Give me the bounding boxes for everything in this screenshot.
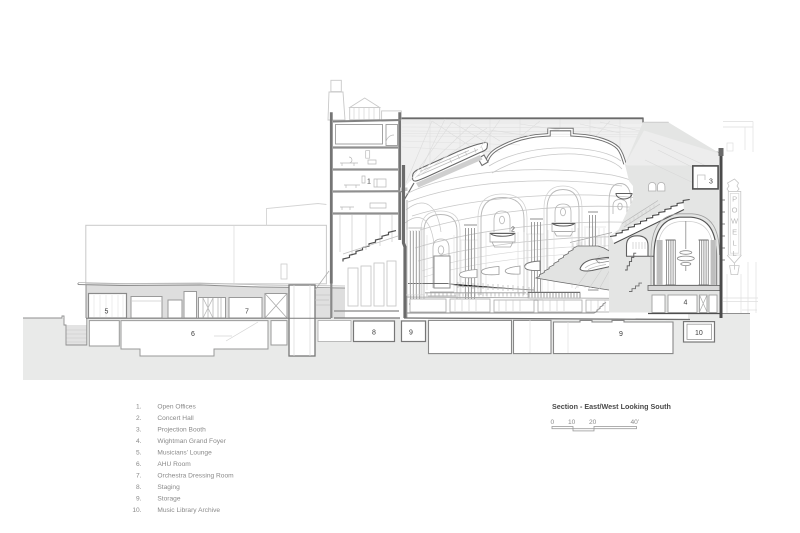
svg-text:E: E <box>732 228 737 237</box>
svg-text:Staging: Staging <box>157 484 180 491</box>
svg-text:10: 10 <box>695 330 703 337</box>
svg-text:P: P <box>732 195 737 204</box>
svg-text:3.: 3. <box>136 426 142 433</box>
svg-text:Projection Booth: Projection Booth <box>157 426 206 433</box>
svg-text:9.: 9. <box>136 495 142 502</box>
svg-text:5.: 5. <box>136 449 142 456</box>
svg-text:Music Library Archive: Music Library Archive <box>157 507 220 514</box>
svg-text:20: 20 <box>589 419 597 426</box>
svg-text:9: 9 <box>409 330 413 337</box>
svg-text:10: 10 <box>568 419 576 426</box>
svg-text:AHU Room: AHU Room <box>157 461 191 468</box>
svg-text:Concert Hall: Concert Hall <box>157 415 194 422</box>
svg-text:W: W <box>731 217 739 226</box>
svg-text:1.: 1. <box>136 403 142 410</box>
svg-text:4.: 4. <box>136 438 142 445</box>
svg-text:3: 3 <box>709 179 713 186</box>
svg-text:Wightman Grand Foyer: Wightman Grand Foyer <box>157 438 226 445</box>
svg-text:Open Offices: Open Offices <box>157 403 196 410</box>
svg-text:Musicians’ Lounge: Musicians’ Lounge <box>157 449 212 456</box>
svg-text:10.: 10. <box>132 507 141 514</box>
svg-text:4: 4 <box>684 300 688 307</box>
svg-text:2.: 2. <box>136 415 142 422</box>
svg-text:Storage: Storage <box>157 495 180 502</box>
svg-text:8: 8 <box>372 330 376 337</box>
svg-text:2: 2 <box>511 227 515 234</box>
svg-text:6.: 6. <box>136 461 142 468</box>
svg-text:L: L <box>733 238 737 247</box>
svg-text:8.: 8. <box>136 484 142 491</box>
svg-text:6: 6 <box>191 331 195 338</box>
svg-text:0: 0 <box>551 419 555 426</box>
svg-text:7: 7 <box>245 309 249 316</box>
svg-text:7.: 7. <box>136 472 142 479</box>
svg-text:5: 5 <box>105 309 109 316</box>
svg-text:L: L <box>733 249 737 258</box>
svg-text:1: 1 <box>367 179 371 186</box>
svg-text:40’: 40’ <box>631 419 640 426</box>
svg-text:O: O <box>732 205 738 214</box>
svg-text:9: 9 <box>619 331 623 338</box>
svg-text:Orchestra Dressing Room: Orchestra Dressing Room <box>157 472 234 479</box>
svg-text:Section - East/West Looking So: Section - East/West Looking South <box>552 402 671 411</box>
